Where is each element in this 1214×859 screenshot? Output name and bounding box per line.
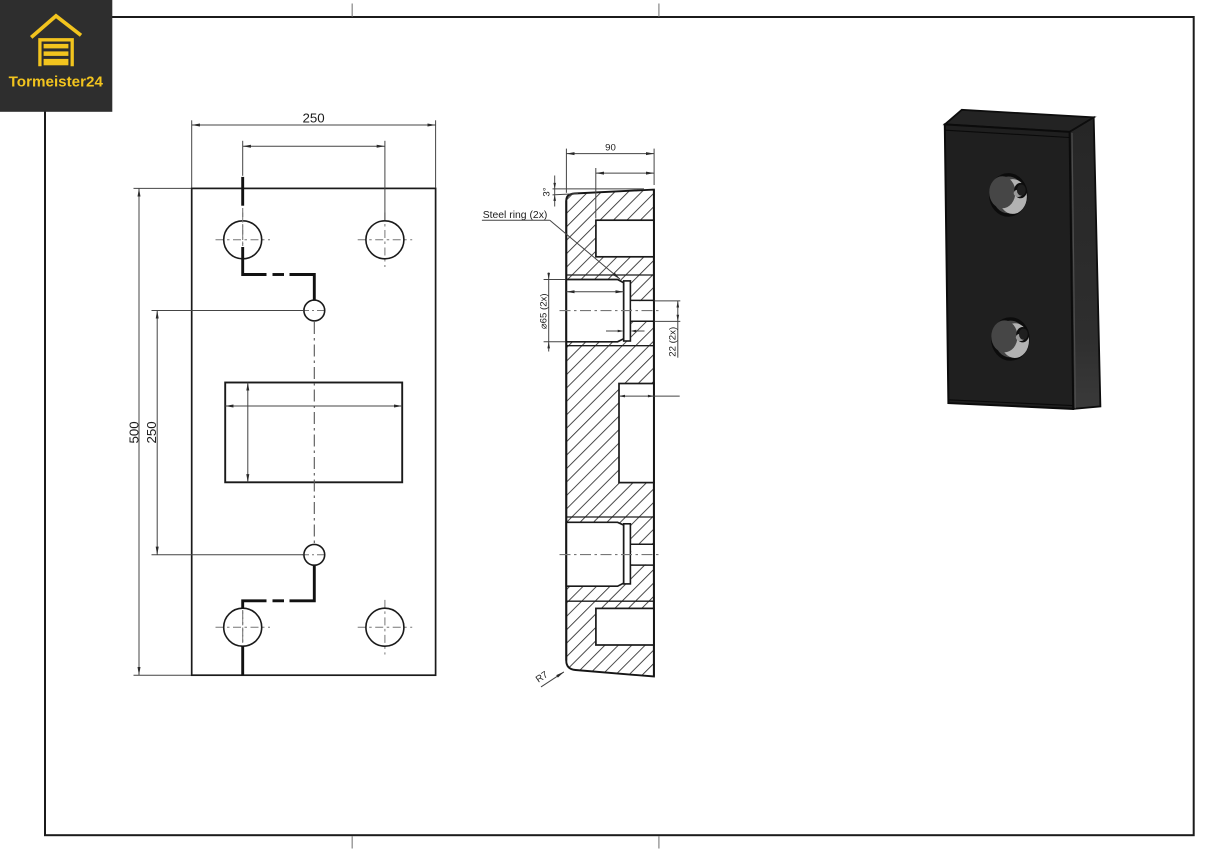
svg-text:500: 500 bbox=[126, 421, 141, 443]
svg-text:3°: 3° bbox=[542, 187, 553, 196]
svg-text:90: 90 bbox=[605, 143, 616, 154]
svg-text:250: 250 bbox=[303, 110, 325, 125]
svg-text:Tormeister24: Tormeister24 bbox=[9, 74, 104, 91]
svg-text:22 (2x): 22 (2x) bbox=[668, 327, 679, 357]
svg-text:250: 250 bbox=[144, 421, 159, 443]
svg-text:⌀65 (2x): ⌀65 (2x) bbox=[539, 293, 550, 329]
svg-text:Steel ring (2x): Steel ring (2x) bbox=[483, 210, 548, 221]
